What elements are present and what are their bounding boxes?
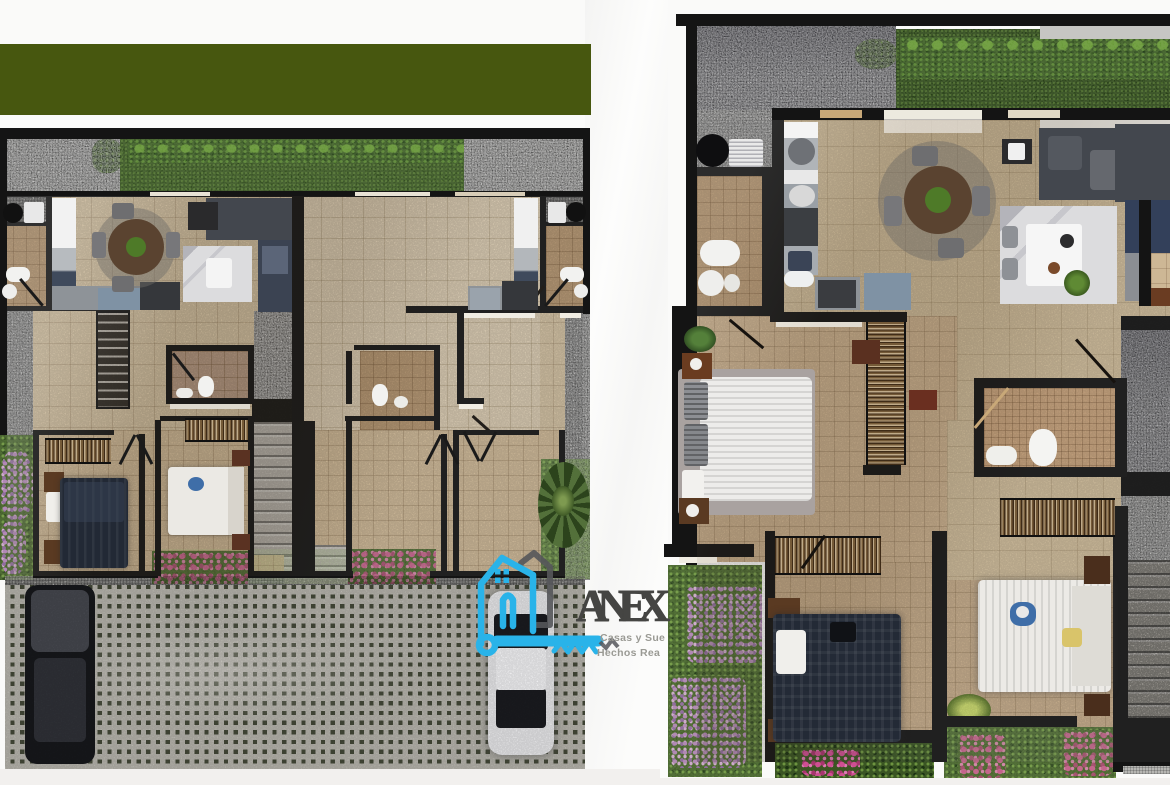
svg-text:Casas y Sue: Casas y Sue [600, 632, 665, 644]
svg-text:Hechos Rea: Hechos Rea [597, 647, 660, 659]
svg-text:ANEX: ANEX [576, 581, 670, 631]
